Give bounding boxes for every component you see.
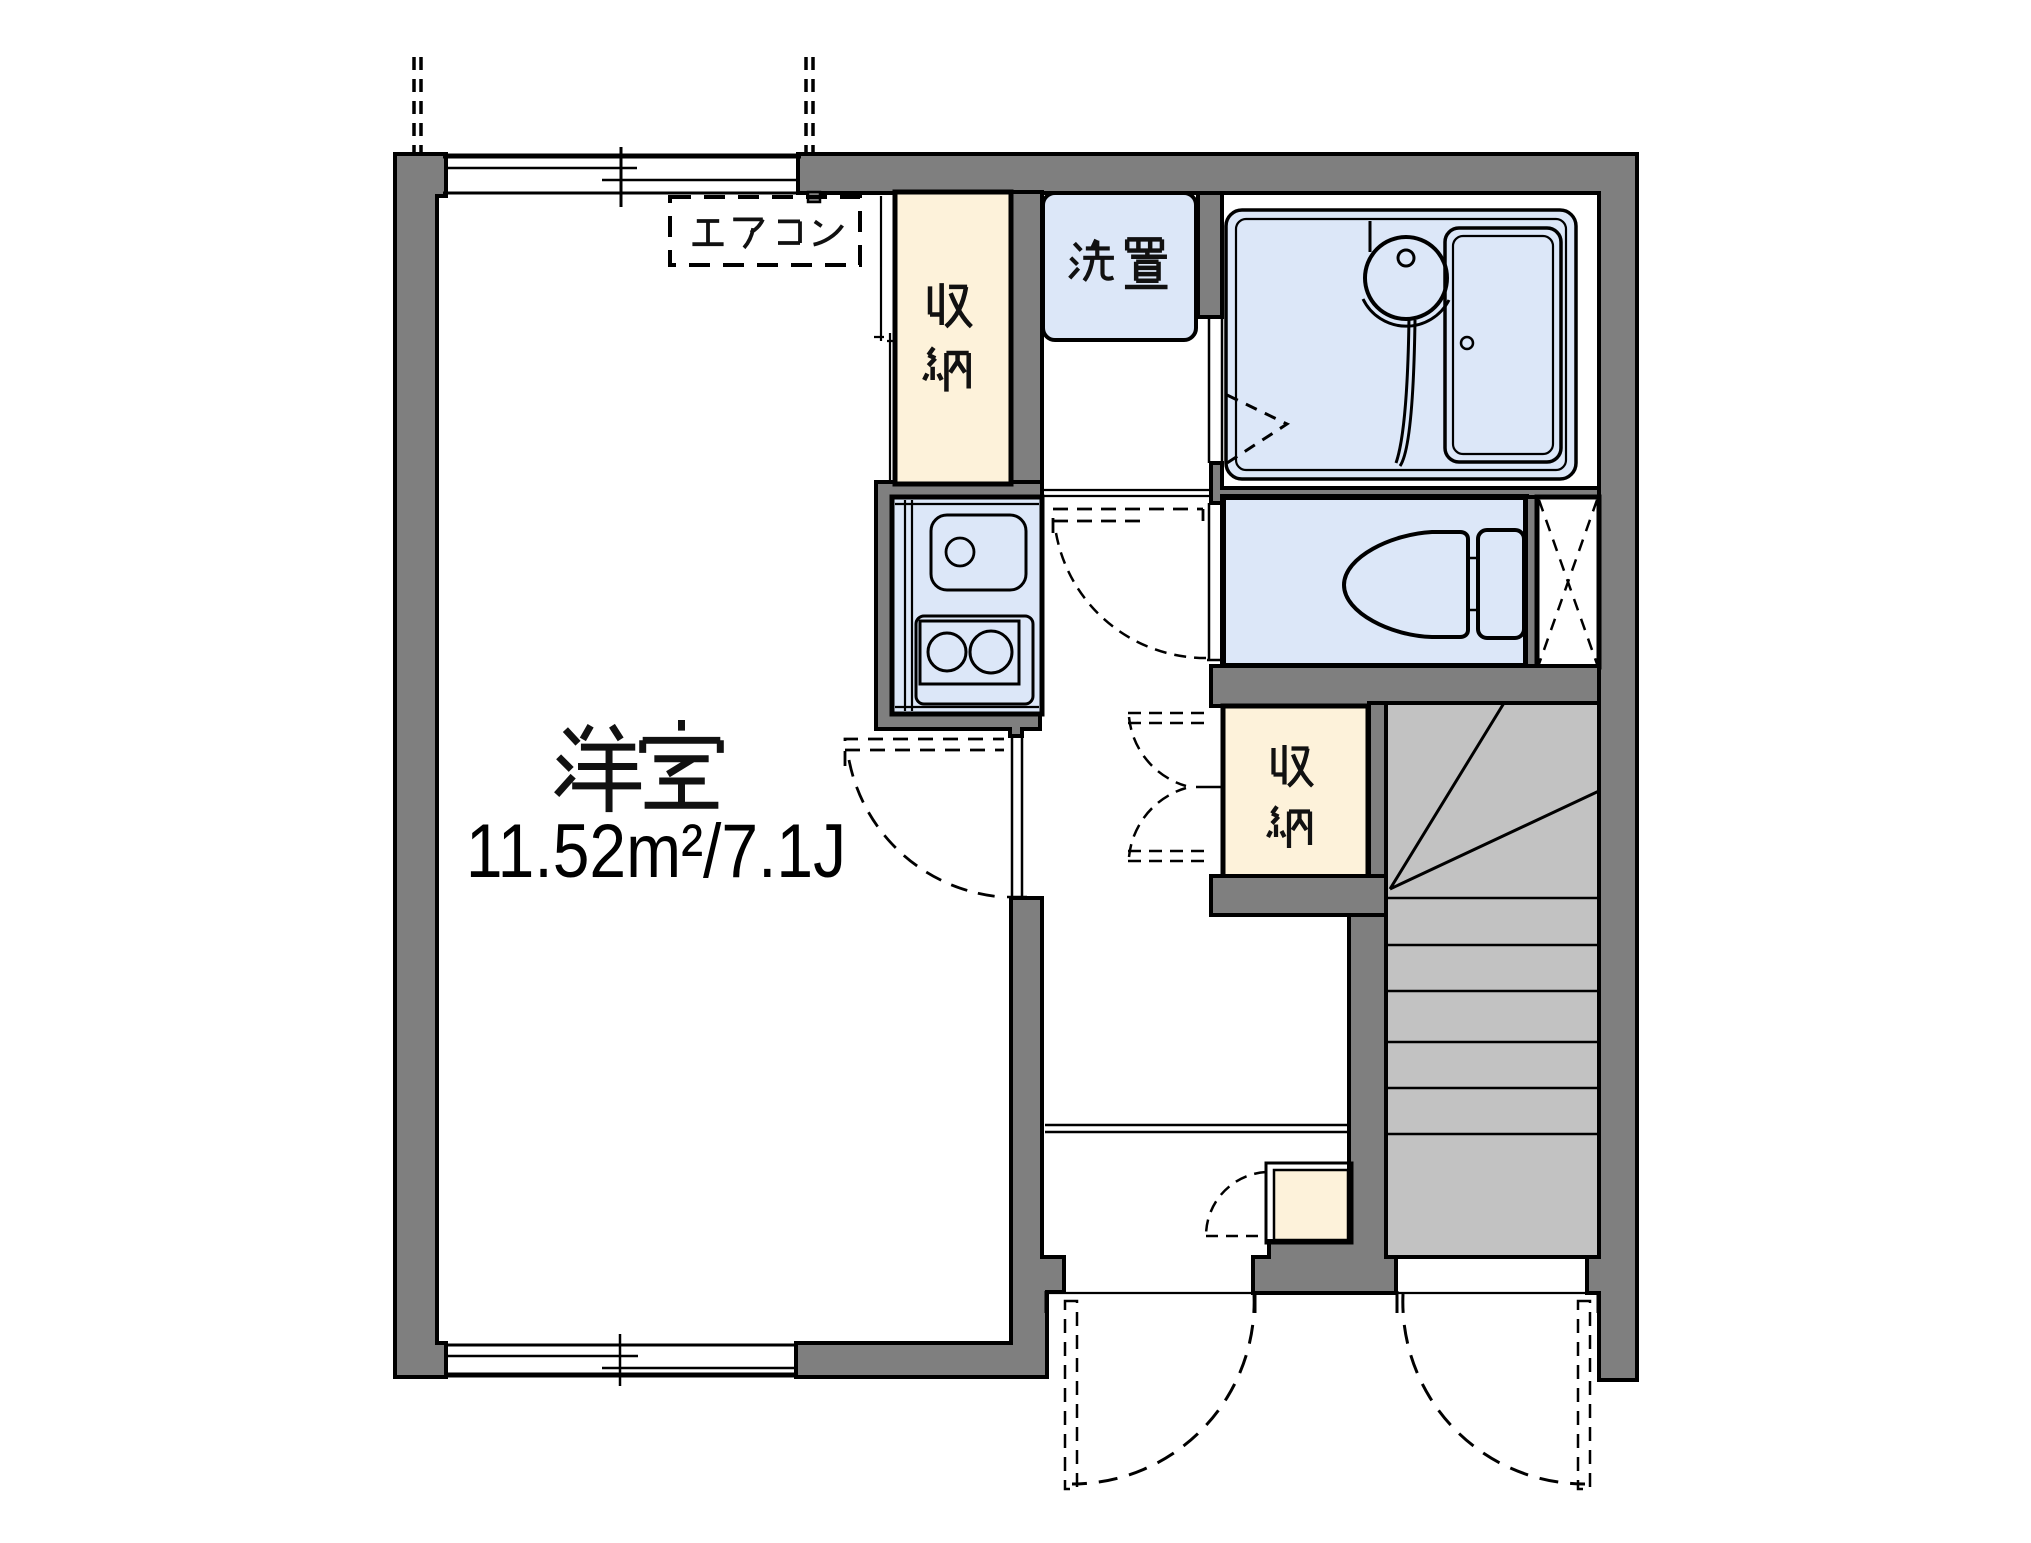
svg-text:11.52m²/7.1J: 11.52m²/7.1J [466,810,846,894]
